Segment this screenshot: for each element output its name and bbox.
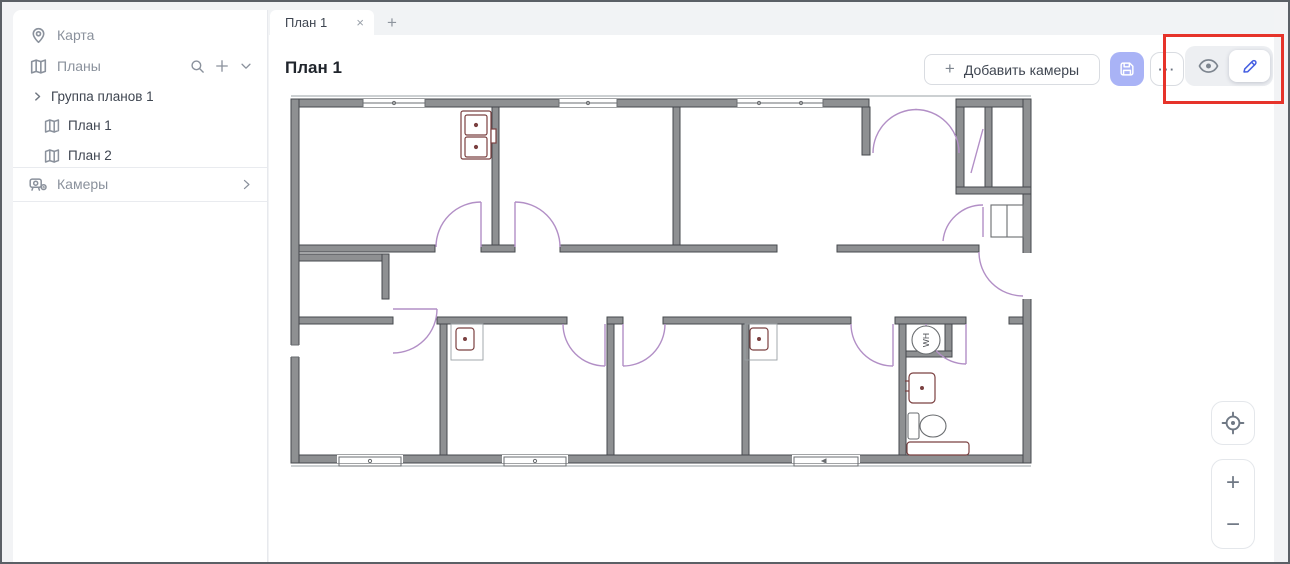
floorplan-windows xyxy=(337,99,860,466)
sidebar-item-map[interactable]: Карта xyxy=(13,20,267,50)
chevron-right-icon[interactable] xyxy=(240,178,253,191)
sidebar-item-cameras[interactable]: Камеры xyxy=(13,168,267,200)
sidebar-item-plan-1[interactable]: План 1 xyxy=(13,112,267,139)
more-options-button[interactable]: ··· xyxy=(1150,52,1184,86)
view-mode-segmented-control xyxy=(1185,46,1273,86)
save-icon xyxy=(1118,60,1136,78)
sidebar-item-label: Карта xyxy=(57,27,94,43)
sidebar-item-label: Планы xyxy=(57,58,101,74)
ellipsis-icon: ··· xyxy=(1158,62,1176,77)
tab-close-icon[interactable]: × xyxy=(356,16,364,29)
zoom-in-button[interactable]: + xyxy=(1211,466,1255,500)
camera-icon xyxy=(29,176,48,193)
map-icon xyxy=(44,118,60,134)
zoom-out-button[interactable]: − xyxy=(1211,508,1255,542)
floorplan-walls xyxy=(291,99,1031,463)
view-mode-button[interactable] xyxy=(1188,50,1229,82)
sidebar-item-label: Камеры xyxy=(57,176,108,192)
sidebar-item-label: Группа планов 1 xyxy=(51,89,154,104)
add-cameras-button[interactable]: + Добавить камеры xyxy=(924,54,1100,85)
floorplan-fixtures: WH xyxy=(451,111,1023,455)
sidebar-item-plan-2[interactable]: План 2 xyxy=(13,142,267,169)
sidebar-item-label: План 2 xyxy=(68,148,112,163)
chevron-down-icon[interactable] xyxy=(239,59,253,73)
save-button[interactable] xyxy=(1110,52,1144,86)
sidebar-divider xyxy=(13,201,267,202)
chevron-right-icon[interactable] xyxy=(32,91,43,102)
locate-button[interactable] xyxy=(1211,401,1255,445)
add-cameras-label: Добавить камеры xyxy=(964,62,1079,78)
add-plan-icon[interactable] xyxy=(215,59,229,73)
new-tab-button[interactable]: + xyxy=(382,13,402,33)
page-title: План 1 xyxy=(285,58,342,78)
floorplan-canvas[interactable]: WH xyxy=(289,95,1033,467)
zoom-control: + − xyxy=(1211,459,1255,549)
tab-plan-1[interactable]: План 1 × xyxy=(270,10,374,35)
plus-icon: + xyxy=(945,59,955,79)
map-icon xyxy=(44,148,60,164)
app-window: Карта Планы xyxy=(0,0,1290,564)
water-heater-label: WH xyxy=(921,333,931,347)
sidebar-item-plans[interactable]: Планы xyxy=(13,51,267,81)
map-icon xyxy=(30,58,47,75)
eye-icon xyxy=(1198,58,1219,74)
search-icon[interactable] xyxy=(190,59,205,74)
tab-bar: План 1 × + xyxy=(269,10,1274,35)
sidebar: Карта Планы xyxy=(13,10,268,562)
tab-label: План 1 xyxy=(285,15,327,30)
sidebar-item-plan-group[interactable]: Группа планов 1 xyxy=(13,83,267,110)
map-pin-icon xyxy=(30,27,47,44)
edit-mode-button[interactable] xyxy=(1229,50,1270,82)
crosshair-icon xyxy=(1221,411,1245,435)
pencil-icon xyxy=(1241,58,1258,75)
sidebar-item-label: План 1 xyxy=(68,118,112,133)
floorplan-frame-lines xyxy=(291,96,1031,466)
